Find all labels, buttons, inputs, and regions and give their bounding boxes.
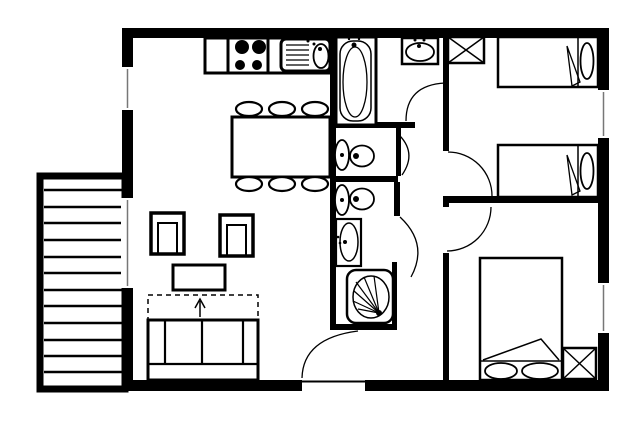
dining-table (232, 117, 330, 177)
armchair (220, 215, 253, 256)
wc1-bowl-dot (353, 153, 359, 159)
single-bed-pillow (581, 43, 594, 79)
sink-tap-dot (307, 40, 310, 43)
wc2-door-leaf (394, 182, 400, 216)
wall-shower-bottom (330, 324, 397, 330)
double-bed-pillow (522, 363, 558, 379)
basin-tap-dot (414, 39, 417, 42)
wc2-cistern-dot (340, 198, 344, 202)
shower-tray (347, 270, 393, 323)
sink-tap-dot (313, 43, 316, 46)
basin-tap-dot (339, 242, 342, 245)
bedroom1-door-arc (448, 152, 492, 196)
dining-stool (269, 102, 295, 116)
double-bed-pillow (485, 363, 517, 379)
basin-tap-dot (343, 240, 347, 244)
entrance-door-arc (302, 331, 358, 378)
bedroom2-door-arc (447, 207, 491, 251)
wall-right (598, 28, 609, 391)
basin-tap-dot (423, 39, 426, 42)
bathroom-door-arc (406, 83, 445, 121)
dining-stool (302, 177, 328, 191)
coffee-table (173, 265, 225, 290)
bathtub-tap-dot (352, 43, 357, 48)
bathtub-tap-dot (358, 38, 360, 40)
wc2-bowl-dot (353, 196, 359, 202)
stove-burner (252, 60, 262, 70)
stove-burner (252, 40, 266, 54)
wall-hallway-lower (443, 253, 449, 380)
wall-wc-divider (330, 176, 398, 182)
sink-tap-dot (318, 47, 322, 51)
bathtub-tap-dot (348, 38, 350, 40)
armchair (151, 213, 184, 254)
sofa-bed-extension (148, 295, 258, 320)
single-bed-pillow (581, 153, 594, 189)
stove-burner (235, 40, 249, 54)
dining-stool (302, 102, 328, 116)
dining-stool (269, 177, 295, 191)
basin-tap-dot (337, 236, 340, 239)
dining-stool (236, 102, 262, 116)
dining-stool (236, 177, 262, 191)
basin-tap-dot (417, 44, 421, 48)
stove-burner (235, 60, 245, 70)
wc2-door-arc (400, 217, 418, 277)
floor-plan-canvas (0, 0, 640, 427)
floor-plan (0, 0, 640, 427)
wc1-cistern-dot (340, 153, 344, 157)
